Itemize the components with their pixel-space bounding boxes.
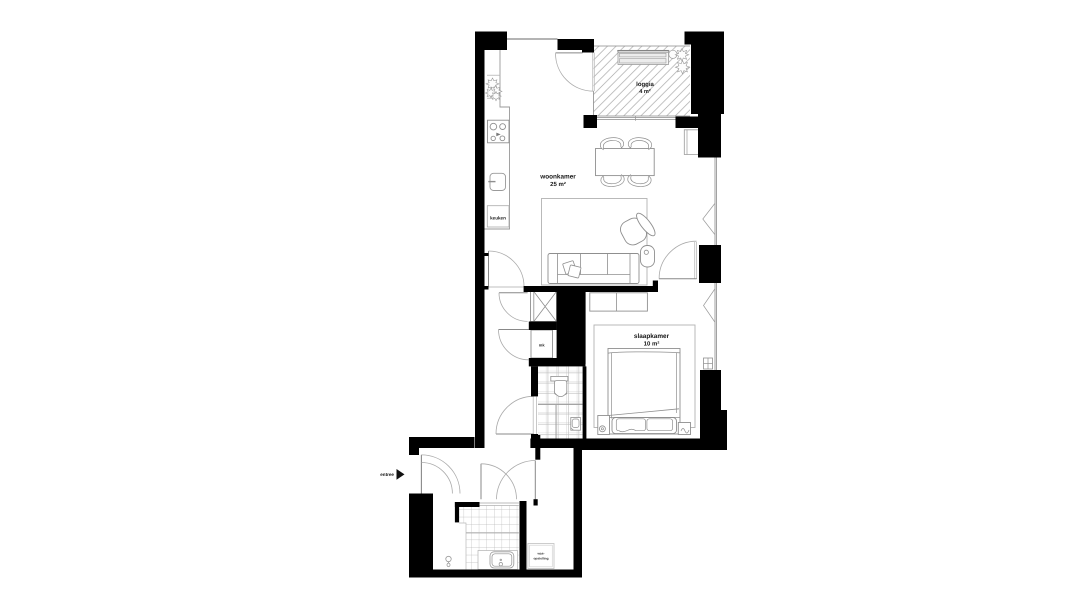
svg-text:keuken: keuken <box>490 216 506 221</box>
svg-text:woonkamer: woonkamer <box>539 174 576 181</box>
svg-text:slaapkamer: slaapkamer <box>634 333 670 340</box>
svg-text:entree: entree <box>380 472 394 477</box>
svg-text:10 m²: 10 m² <box>644 341 660 348</box>
svg-text:4 m²: 4 m² <box>639 89 651 95</box>
svg-text:loggia: loggia <box>636 81 654 88</box>
svg-text:mk: mk <box>539 342 546 347</box>
svg-text:opstelling: opstelling <box>533 557 548 561</box>
svg-text:was-: was- <box>536 552 544 556</box>
svg-text:25 m²: 25 m² <box>550 181 566 188</box>
